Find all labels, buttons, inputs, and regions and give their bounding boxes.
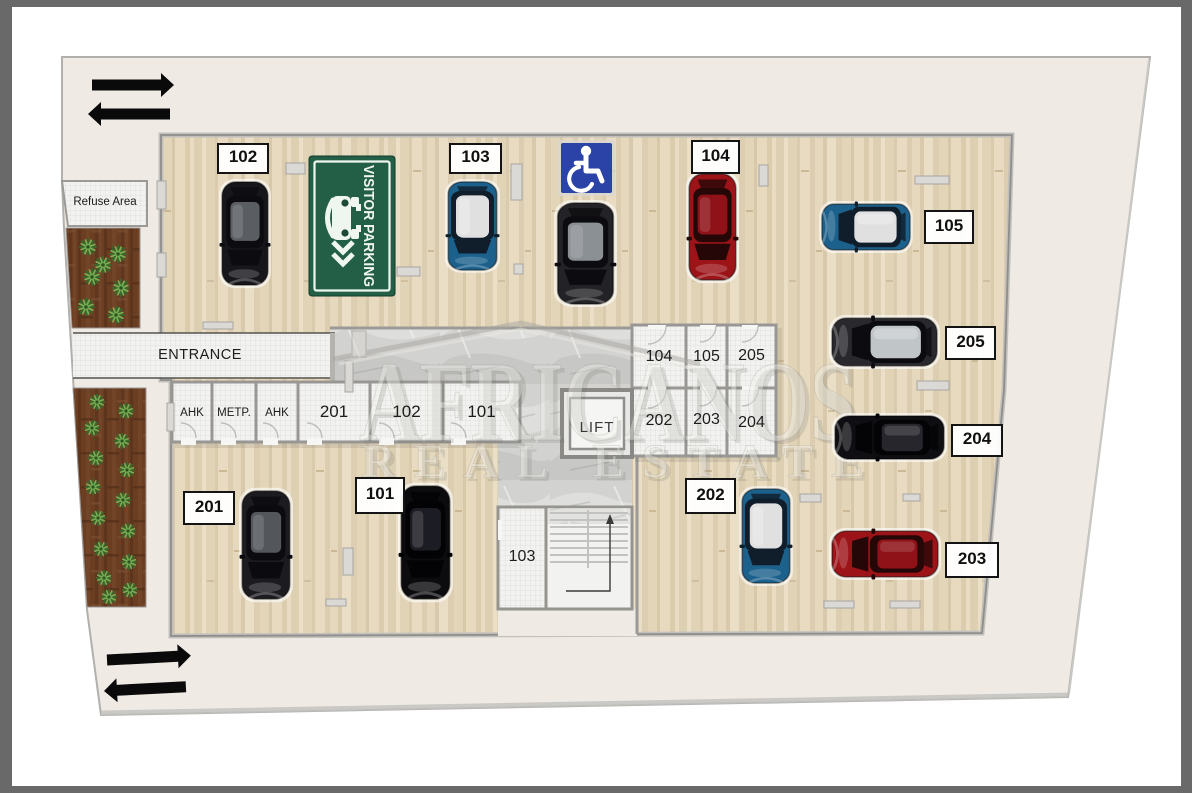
svg-text:VISITOR PARKING: VISITOR PARKING: [360, 165, 377, 287]
svg-text:REAL ESTATE: REAL ESTATE: [361, 435, 863, 488]
